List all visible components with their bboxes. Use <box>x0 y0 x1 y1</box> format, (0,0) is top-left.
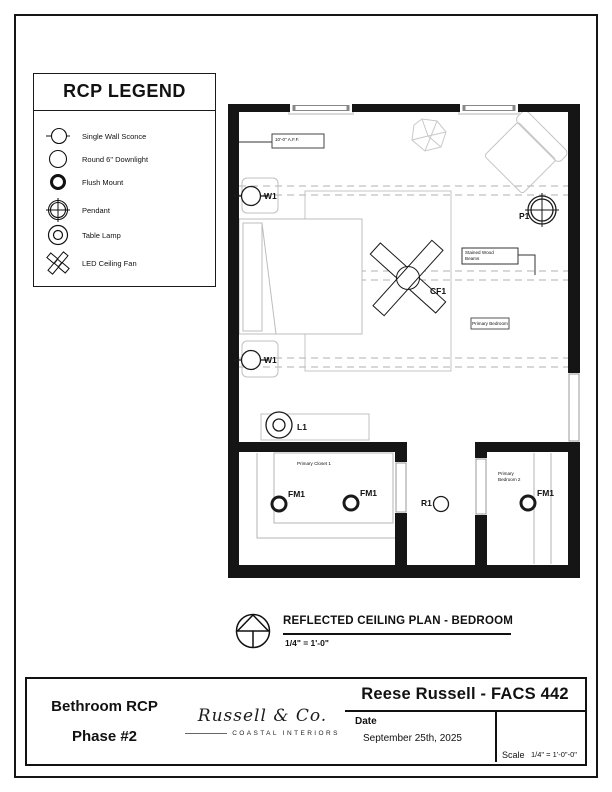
legend-divider <box>34 110 215 111</box>
sheet-info-bottom: Date September 25th, 2025 Scale 1/4" = 1… <box>345 712 585 762</box>
drawing-title-underline <box>283 633 511 635</box>
right-wall-opening <box>569 374 579 441</box>
pendant-symbol <box>525 193 559 227</box>
scale-value: 1/4" = 1'-0"-0" <box>531 750 577 759</box>
sheet-page: RCP LEGEND Single Wall Sconce Round 6" D… <box>0 0 612 792</box>
ceiling-fan-symbol <box>370 240 445 315</box>
room-name-text: Primary Bedroom <box>471 321 509 327</box>
window-2 <box>458 103 520 115</box>
logo-divider-line <box>185 733 227 734</box>
floor-plan-linework <box>227 95 587 595</box>
company-logo-subtitle-row: COASTAL INTERIORS <box>185 730 340 737</box>
legend-item-flush-mount: Flush Mount <box>34 169 215 195</box>
project-title-box: Bethroom RCP Phase #2 <box>25 677 184 766</box>
led-ceiling-fan-icon <box>34 249 82 277</box>
legend-item-label: Round 6" Downlight <box>82 155 148 164</box>
ceiling-height-text: 10'-0" A.F.F. <box>275 137 299 143</box>
date-value: September 25th, 2025 <box>363 733 462 744</box>
fixture-label-fm1-a: FM1 <box>288 489 305 499</box>
drawing-title: REFLECTED CEILING PLAN - BEDROOM <box>283 615 513 627</box>
bedroom2-partitions <box>534 453 551 564</box>
rcp-legend: RCP LEGEND Single Wall Sconce Round 6" D… <box>33 73 216 287</box>
legend-item-label: Table Lamp <box>82 231 121 240</box>
date-cell: Date September 25th, 2025 <box>345 712 495 762</box>
fixture-label-fm1-b: FM1 <box>360 488 377 498</box>
flush-mount-icon <box>34 169 82 195</box>
table-lamp-icon <box>34 222 82 248</box>
scale-label: Scale <box>502 750 525 760</box>
legend-item-label: Pendant <box>82 206 110 215</box>
pendant-icon <box>34 197 82 223</box>
fixture-label-r1: R1 <box>421 498 432 508</box>
company-logo: Russell & Co. <box>198 706 327 726</box>
downlight-symbol <box>434 497 449 512</box>
fixture-label-w1-bottom: W1 <box>264 355 277 365</box>
project-phase: Phase #2 <box>72 728 137 745</box>
fixture-label-p1: P1 <box>519 211 529 221</box>
closet-door-opening <box>396 463 406 512</box>
fixture-label-cf1: CF1 <box>430 286 446 296</box>
legend-item-ceiling-fan: LED Ceiling Fan <box>34 250 215 276</box>
flush-mount-symbol-2 <box>344 496 358 510</box>
sheet-header: Reese Russell - FACS 442 <box>345 679 585 712</box>
legend-item-label: LED Ceiling Fan <box>82 259 137 268</box>
legend-title: RCP LEGEND <box>34 81 215 102</box>
flush-mount-symbol-3 <box>521 496 535 510</box>
legend-item-pendant: Pendant <box>34 197 215 223</box>
plant-decor <box>412 119 446 151</box>
flush-mount-symbol-1 <box>272 497 286 511</box>
bedroom2-door-opening <box>476 459 486 514</box>
date-label: Date <box>355 716 377 727</box>
wall-sconce-symbol-top <box>234 187 268 206</box>
table-lamp-symbol <box>266 412 292 438</box>
armchair <box>481 109 569 197</box>
fixture-label-l1: L1 <box>297 422 307 432</box>
legend-item-label: Flush Mount <box>82 178 123 187</box>
fixture-label-fm1-c: FM1 <box>537 488 554 498</box>
beams-text: Stained Wood Beams <box>465 250 495 261</box>
drawing-title-icon <box>234 612 272 650</box>
drawing-scale: 1/4" = 1'-0" <box>285 638 329 648</box>
company-logo-box: Russell & Co. COASTAL INTERIORS <box>180 677 347 766</box>
fixture-label-w1-top: W1 <box>264 191 277 201</box>
legend-item-table-lamp: Table Lamp <box>34 222 215 248</box>
closet-name-text: Primary Closet 1 <box>297 461 331 467</box>
floor-plan: W1 W1 P1 CF1 L1 FM1 FM1 FM1 R1 10'-0" A.… <box>227 95 587 595</box>
sheet-info-box: Reese Russell - FACS 442 Date September … <box>345 677 587 766</box>
company-logo-subtitle: COASTAL INTERIORS <box>232 730 340 737</box>
project-name: Bethroom RCP <box>51 698 158 715</box>
bedroom2-name-text: Primary Bedroom 2 <box>498 471 522 482</box>
scale-cell: Scale 1/4" = 1'-0"-0" <box>495 712 585 762</box>
legend-item-label: Single Wall Sconce <box>82 132 146 141</box>
window-1 <box>288 103 354 115</box>
bed <box>239 219 362 334</box>
